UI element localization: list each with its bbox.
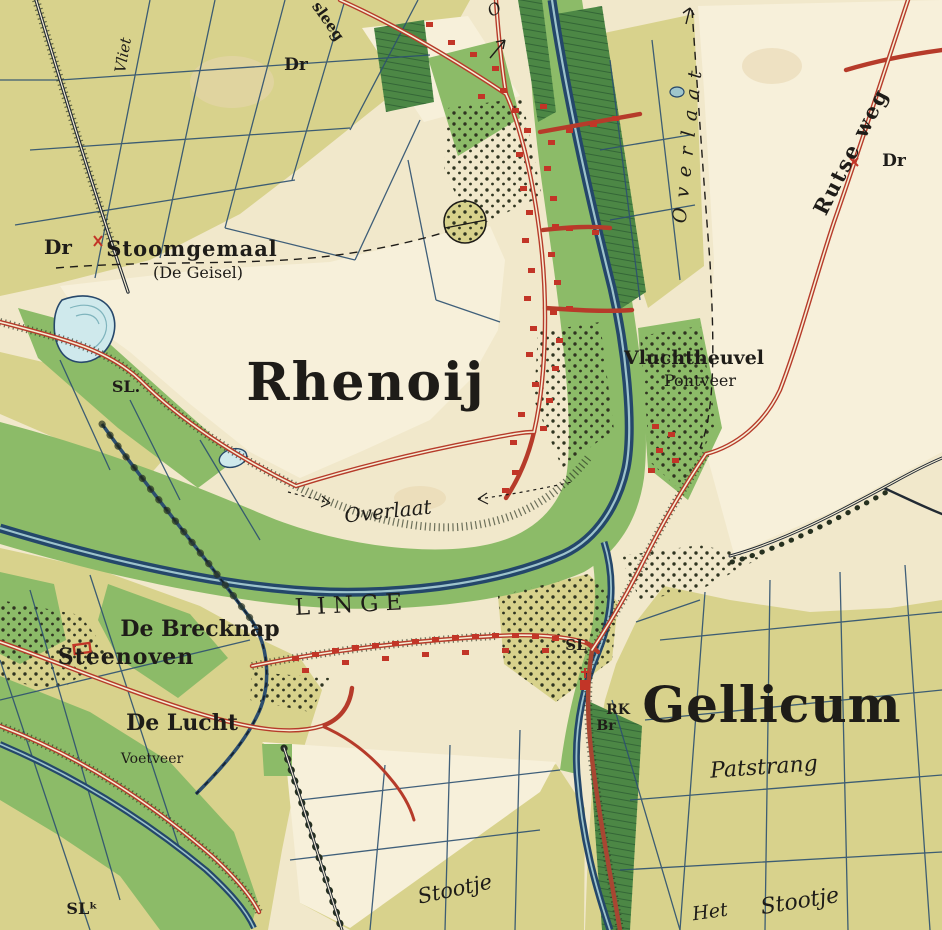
label-overlaat-mid: Overlaat: [343, 494, 433, 527]
map-viewport[interactable]: Rhenoij Gellicum Dr Stoomgemaal (De Geis…: [0, 0, 942, 930]
label-sl-left: SL.: [112, 377, 140, 396]
label-sl-gellicum: SL: [565, 636, 587, 654]
label-rhenoij: Rhenoij: [246, 352, 485, 413]
label-rk: RK: [606, 702, 631, 718]
field-regions: [0, 0, 942, 930]
label-steenoven: Steenoven: [58, 644, 195, 670]
label-gellicum: Gellicum: [642, 675, 901, 734]
label-vluchtheuvel: Vluchtheuvel: [623, 347, 764, 369]
label-dr-stoomgemaal: Dr: [44, 235, 72, 259]
label-de-lucht: De Lucht: [126, 710, 239, 736]
label-sl-bottom: SLᵏ: [66, 899, 97, 918]
label-br: Br: [596, 718, 616, 734]
map-canvas[interactable]: Rhenoij Gellicum Dr Stoomgemaal (De Geis…: [0, 0, 942, 930]
label-dr-top: Dr: [284, 55, 309, 75]
label-o-fragment: O: [484, 0, 505, 21]
label-stoomgemaal: Stoomgemaal: [106, 236, 278, 261]
label-voetveer: Voetveer: [120, 751, 184, 767]
label-pontveer: Pontveer: [664, 371, 736, 390]
label-de-brecknap: De Brecknap: [120, 616, 279, 642]
label-linge: LINGE: [294, 589, 410, 621]
round-orchard: [444, 201, 486, 243]
label-dr-right: Dr: [882, 151, 907, 171]
label-de-geisel: (De Geisel): [153, 263, 243, 282]
